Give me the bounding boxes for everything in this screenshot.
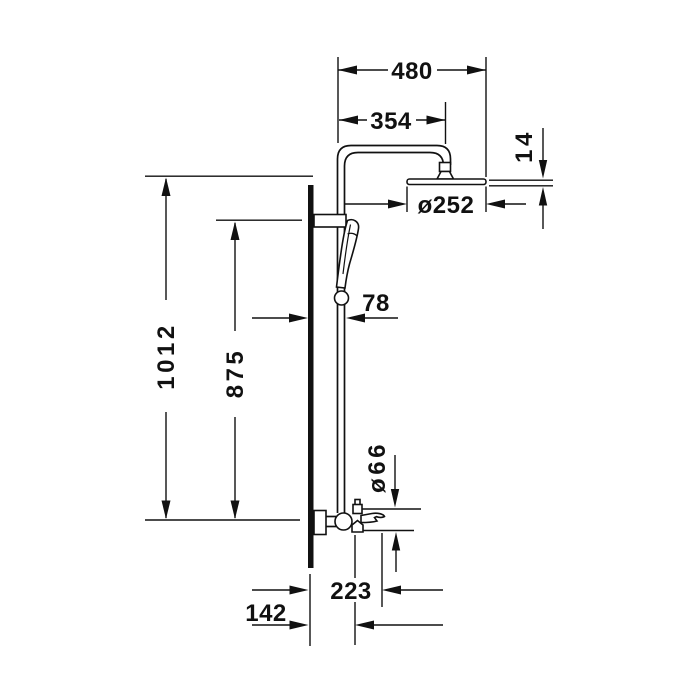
dimension-overall-height: 1012 — [152, 178, 180, 520]
technical-drawing-canvas: 480 354 14 ø252 1012 875 — [0, 0, 699, 700]
dimension-label-142: 142 — [245, 600, 287, 627]
arrowhead-right-icon — [427, 116, 446, 125]
arrowhead-down-icon — [231, 501, 240, 520]
arrowhead-up-icon — [539, 187, 547, 206]
head-connector-nut — [440, 163, 451, 172]
slide-bar-bracket — [314, 215, 346, 228]
arrowhead-left-icon — [355, 621, 374, 630]
dimension-label-223: 223 — [330, 578, 372, 605]
dimension-rain-head-diameter: ø252 — [345, 192, 526, 219]
head-connector-cone — [437, 172, 454, 180]
arrowhead-right-icon — [467, 66, 486, 75]
arrowhead-up-icon — [231, 222, 240, 241]
arrowhead-right-icon — [388, 200, 407, 209]
dimension-label-480: 480 — [391, 58, 433, 85]
mixer-wall-union — [314, 511, 326, 535]
mixer-valve-body — [335, 513, 352, 530]
arrowhead-right-icon — [290, 586, 309, 595]
arrowhead-up-icon — [392, 532, 400, 551]
arrowhead-left-icon — [486, 200, 505, 209]
arrowhead-left-icon — [382, 586, 401, 595]
dimension-bar-wall-distance: 78 — [252, 290, 398, 323]
dimension-label-14: 14 — [511, 129, 538, 163]
arrowhead-left-icon — [338, 66, 357, 75]
wall-mounting-plate — [308, 185, 314, 568]
shower-system-dimension-drawing: 480 354 14 ø252 1012 875 — [0, 0, 699, 700]
arrowhead-down-icon — [539, 160, 547, 179]
hand-shower-ball-joint — [335, 291, 349, 305]
dimension-label-875: 875 — [222, 348, 249, 399]
arrowhead-right-icon — [290, 621, 309, 630]
arrowhead-left-icon — [339, 116, 358, 125]
arrowhead-down-icon — [391, 489, 399, 508]
dimension-label-78: 78 — [362, 290, 390, 317]
dimension-label-66: ø66 — [364, 441, 391, 493]
dimension-overall-width: 480 — [338, 58, 486, 85]
dimension-label-1012: 1012 — [153, 322, 180, 389]
hand-shower — [337, 220, 359, 288]
diverter-knob — [353, 505, 362, 514]
dimension-head-thickness: 14 — [511, 128, 547, 229]
dimension-label-252: ø252 — [418, 192, 475, 219]
arrowhead-down-icon — [162, 501, 171, 520]
dimension-arm-projection: 354 — [339, 108, 446, 135]
bath-spout — [361, 513, 385, 522]
dimension-label-354: 354 — [370, 108, 412, 135]
arrowhead-right-icon — [289, 314, 308, 323]
dimension-slide-bar-height: 875 — [221, 222, 249, 520]
rain-shower-head — [407, 179, 486, 185]
arrowhead-up-icon — [162, 178, 171, 197]
